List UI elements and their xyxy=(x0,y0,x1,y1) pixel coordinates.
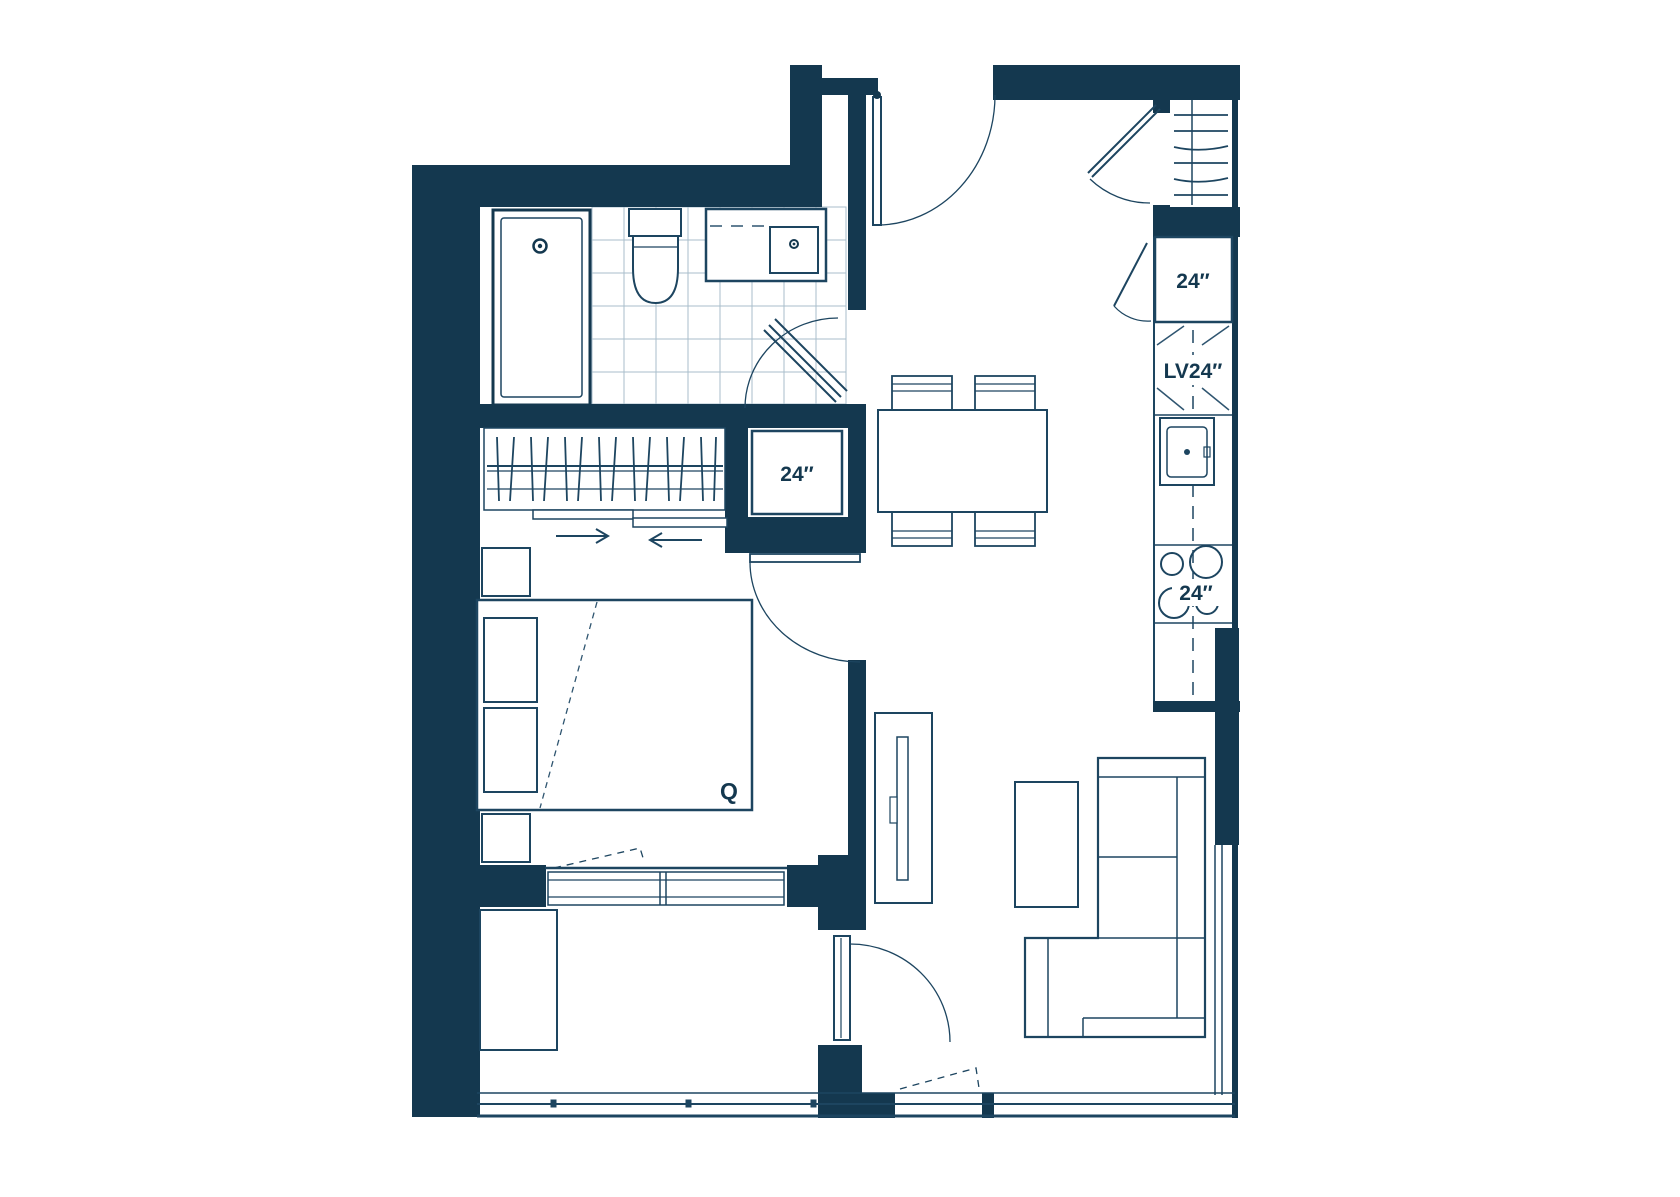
toilet xyxy=(629,209,681,303)
burner xyxy=(1161,553,1183,575)
entry xyxy=(873,91,1228,225)
kitchen: 24″ LV24″ 24″ xyxy=(1114,237,1232,701)
dining-chair xyxy=(892,376,952,410)
bedroom-window xyxy=(545,848,787,905)
wall-segment xyxy=(1232,65,1238,1118)
living-room-window-right xyxy=(1215,845,1222,1095)
burner xyxy=(1190,546,1222,578)
wardrobe xyxy=(484,428,725,510)
hangers xyxy=(1174,115,1228,195)
wall-segment xyxy=(818,1045,862,1095)
tv-screen xyxy=(897,737,908,880)
bedroom: Q xyxy=(477,548,860,905)
dining-chair xyxy=(892,512,952,546)
kitchen-sink xyxy=(1160,418,1214,485)
pillow xyxy=(484,708,537,792)
fridge-label: 24″ xyxy=(1176,270,1209,293)
queen-bed: Q xyxy=(477,600,752,810)
nightstand xyxy=(482,548,530,596)
pillow xyxy=(484,618,537,702)
entry-door xyxy=(873,91,995,225)
slide-direction-arrows xyxy=(556,529,702,547)
sliding-closet-doors xyxy=(533,510,727,547)
bed-size-label: Q xyxy=(720,778,738,804)
entry-closet xyxy=(1174,100,1228,205)
wall-segment xyxy=(848,660,866,855)
wall-segment xyxy=(787,865,866,907)
wall-segment xyxy=(725,517,866,553)
wall-segment xyxy=(993,65,1240,100)
dishwasher-label: LV24″ xyxy=(1164,360,1223,383)
linen-closet: 24″ xyxy=(752,431,842,514)
wall-segment xyxy=(725,428,748,520)
planter-box xyxy=(480,910,557,1050)
wall-segment xyxy=(1153,205,1170,225)
window-swing-indicator xyxy=(554,848,644,868)
bathroom xyxy=(493,209,847,408)
bedroom-door xyxy=(750,554,860,662)
bathroom-pivot-door xyxy=(745,318,847,408)
dining-chair xyxy=(975,512,1035,546)
hangers xyxy=(497,437,716,501)
door-swing-indicator xyxy=(900,1068,979,1089)
nightstand xyxy=(482,814,530,862)
bathtub xyxy=(493,210,590,405)
refrigerator: 24″ xyxy=(1114,237,1232,322)
floor-plan: 24″ Q xyxy=(0,0,1680,1197)
range-label: 24″ xyxy=(1179,582,1212,605)
floor-plan-drawing: 24″ Q xyxy=(0,0,1680,1197)
range: 24″ xyxy=(1159,546,1222,618)
wall-segment xyxy=(480,865,546,907)
dining-chair xyxy=(975,376,1035,410)
dining-table xyxy=(878,410,1047,512)
wall-segment xyxy=(818,1093,895,1118)
wall-segment xyxy=(412,165,480,1117)
entry-closet-door xyxy=(1088,105,1160,203)
wall-segment xyxy=(1153,701,1240,712)
linen-closet-label: 24″ xyxy=(780,463,813,486)
vanity-sink xyxy=(706,209,826,281)
wall-segment xyxy=(412,404,866,428)
tv-unit xyxy=(875,713,932,903)
coffee-table xyxy=(1015,782,1078,907)
wall-segment xyxy=(790,65,822,207)
window-mullion-pier xyxy=(982,1093,994,1118)
tv-mount xyxy=(890,797,897,823)
door-hinge xyxy=(873,91,881,99)
wall-segment xyxy=(848,78,866,310)
